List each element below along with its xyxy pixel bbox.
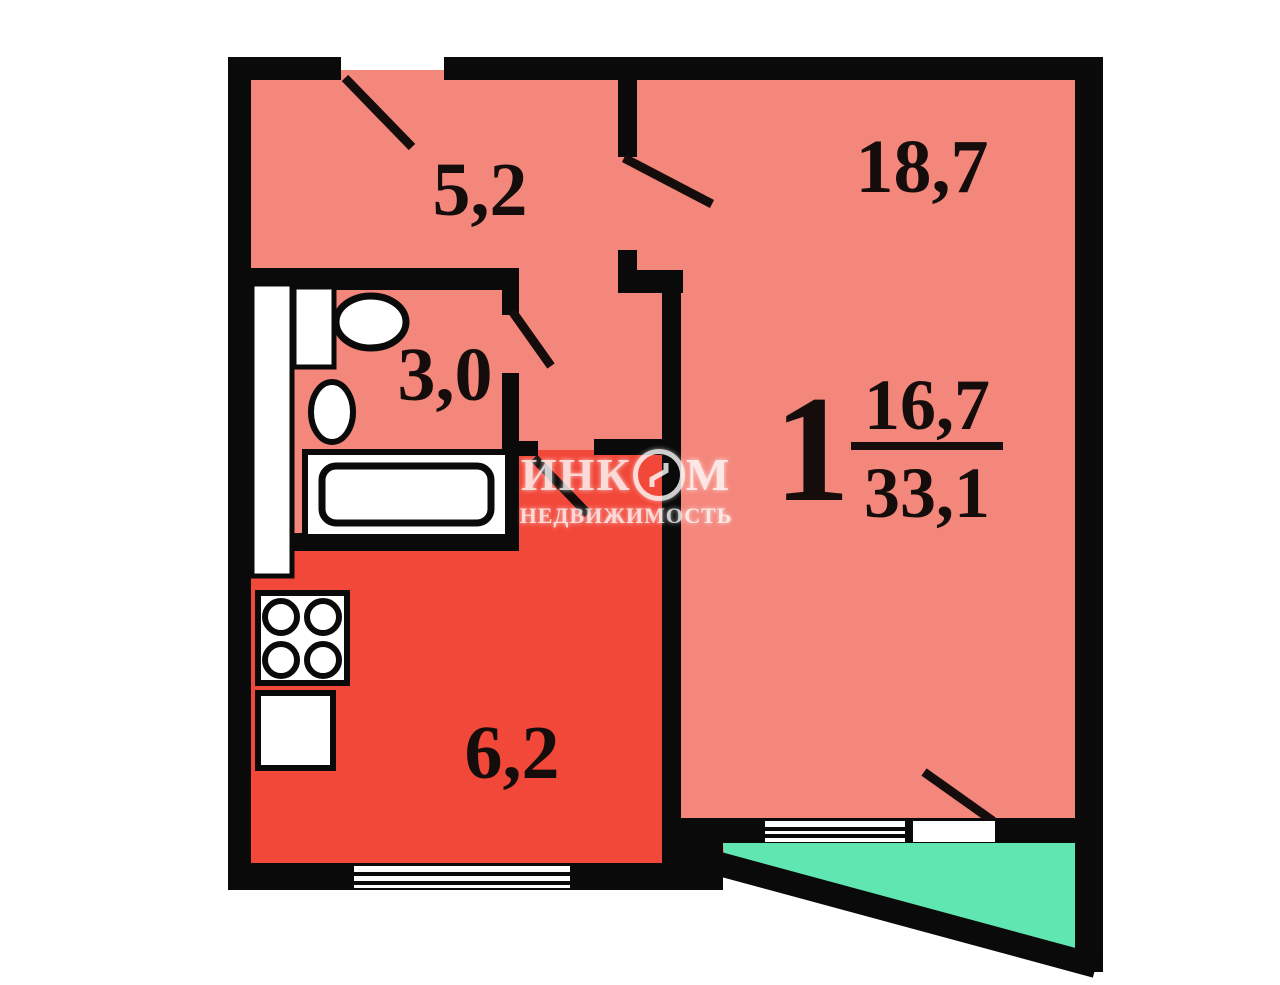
west-wall: [228, 57, 251, 890]
toilet: [311, 382, 353, 442]
kitchen-sink-icon: [258, 693, 333, 768]
rooms-count-label: 1: [774, 365, 850, 533]
kitchen-window: [354, 866, 570, 888]
kitchen-entry-floor: [502, 450, 663, 548]
washbasin-counter: [294, 287, 334, 367]
top-wall-right: [444, 57, 1103, 80]
hallway-area-label: 5,2: [433, 148, 528, 232]
living-room-area-label: 18,7: [856, 125, 989, 209]
total-area-label: 33,1: [864, 453, 990, 533]
duct-shaft: [252, 284, 292, 576]
balcony-floor: [723, 843, 1075, 949]
stove-icon: [258, 593, 347, 683]
apartment-summary: 1 16,7 33,1: [774, 365, 1003, 533]
living-partition-upper-stub: [618, 80, 637, 157]
bathroom-area-label: 3,0: [398, 333, 493, 417]
bathtub: [322, 466, 491, 523]
floor-plan-drawing: 5,2 18,7 3,0 6,2 1 16,7 33,1: [0, 0, 1280, 985]
living-area-label: 16,7: [864, 365, 990, 445]
balcony-door-opening: [913, 821, 995, 842]
east-wall: [1075, 57, 1103, 972]
fraction-bar: [851, 442, 1003, 450]
living-partition-wall: [662, 270, 681, 890]
living-room-window: [765, 821, 905, 842]
kitchen-area-label: 6,2: [465, 711, 560, 795]
washbasin: [336, 296, 406, 348]
floor-plan: 5,2 18,7 3,0 6,2 1 16,7 33,1 ИНК М НЕДВИ…: [0, 0, 1280, 985]
